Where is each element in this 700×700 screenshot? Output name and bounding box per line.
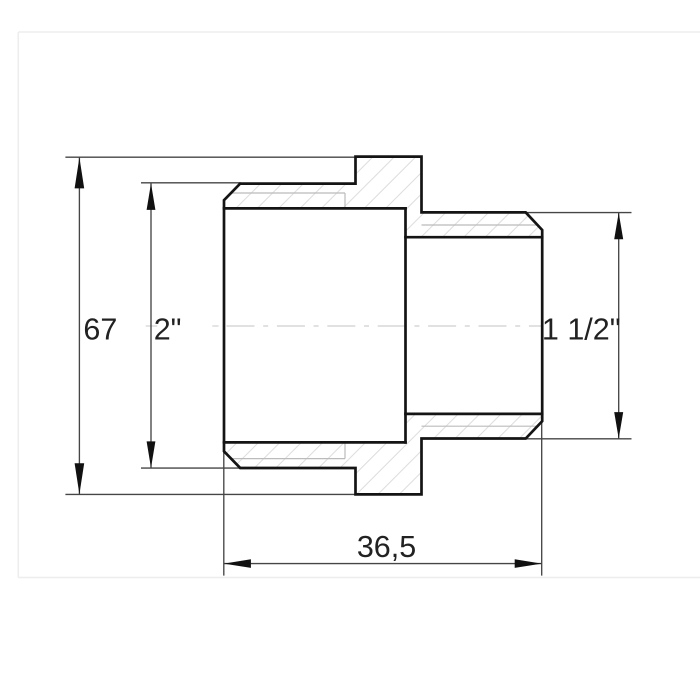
svg-text:67: 67 <box>83 313 117 347</box>
svg-text:1 1/2": 1 1/2" <box>542 313 621 347</box>
svg-text:36,5: 36,5 <box>357 530 416 564</box>
svg-text:2": 2" <box>154 313 182 347</box>
